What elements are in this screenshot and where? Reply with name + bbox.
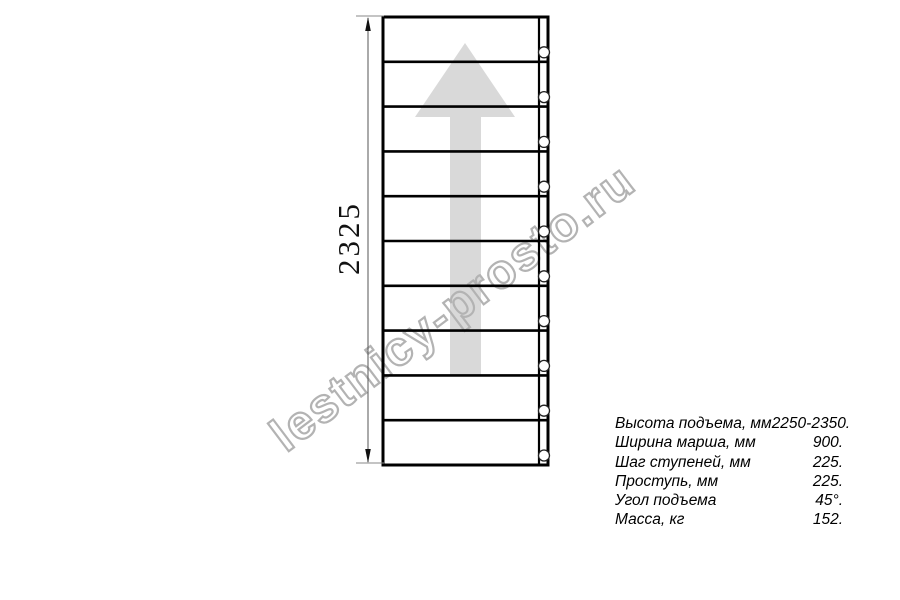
dimension-value: 2325 <box>331 201 366 275</box>
spec-label: Масса, кг <box>615 510 684 529</box>
stair-diagram-page: { "drawing": { "dimension_label": "2325"… <box>0 0 900 600</box>
spec-value: 2250-2350. <box>772 414 850 433</box>
spec-value: 225. <box>813 472 843 491</box>
spec-label: Угол подъема <box>615 491 716 510</box>
bolt-circle <box>539 92 550 103</box>
spec-row: Шаг ступеней, мм225. <box>615 453 843 472</box>
bolt-circle <box>539 226 550 237</box>
bolt-circle <box>539 181 550 192</box>
step-lines-group <box>383 62 548 420</box>
bolt-circle <box>539 316 550 327</box>
bolt-circle <box>539 136 550 147</box>
dimension-arrow-bottom-icon <box>365 449 371 463</box>
spec-row: Проступь, мм225. <box>615 472 843 491</box>
spec-label: Высота подъема, мм <box>615 414 772 433</box>
dimension-arrow-top-icon <box>365 17 371 31</box>
bolt-circle <box>539 47 550 58</box>
spec-row: Высота подъема, мм2250-2350. <box>615 414 843 433</box>
spec-row: Ширина марша, мм900. <box>615 433 843 452</box>
spec-value: 45°. <box>815 491 843 510</box>
bolt-circle <box>539 405 550 416</box>
bolt-circle <box>539 450 550 461</box>
bolt-circle <box>539 360 550 371</box>
spec-label: Ширина марша, мм <box>615 433 756 452</box>
spec-value: 152. <box>813 510 843 529</box>
bolt-circle <box>539 271 550 282</box>
spec-row: Угол подъема45°. <box>615 491 843 510</box>
spec-label: Проступь, мм <box>615 472 718 491</box>
spec-label: Шаг ступеней, мм <box>615 453 751 472</box>
spec-value: 225. <box>813 453 843 472</box>
spec-list: Высота подъема, мм2250-2350.Ширина марша… <box>615 414 843 530</box>
spec-row: Масса, кг152. <box>615 510 843 529</box>
spec-value: 900. <box>813 433 843 452</box>
